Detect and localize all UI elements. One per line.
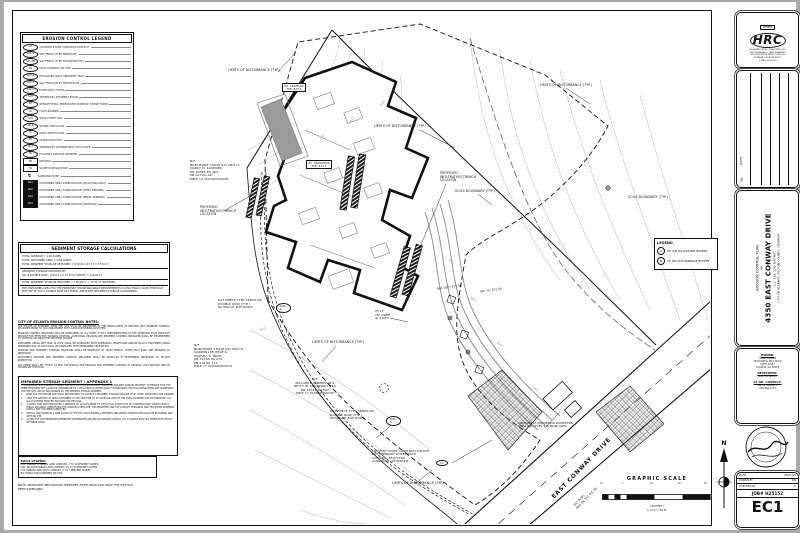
legend-leader-line xyxy=(85,61,131,62)
developer-lines: SAME AS ABOVE xyxy=(737,375,798,378)
item-text: ALONG THE SITE PERIMETER WHEREVER STORMW… xyxy=(27,419,176,424)
job-row-label: DRAWN BY xyxy=(739,479,753,482)
scale-tick: 90 xyxy=(704,482,707,485)
legend-label: CURB INLET FILTER xyxy=(40,89,64,92)
note-paragraph: DISTURBED AREAS LEFT IDLE 14 DAYS SHALL … xyxy=(18,343,170,348)
legend-row: Dv DIVERSION DITCH xyxy=(21,137,133,144)
legend-label: FLOW BARRIER xyxy=(40,110,59,113)
legend-symbol: Sd4 xyxy=(23,115,38,122)
job-rows: DATE 08/11/25 DRAWN BY KW CHECKED BY JT xyxy=(737,473,798,490)
legend-row: Ds3 DISTURBED AREA STABILIZATION (PERM. … xyxy=(21,194,133,201)
legend-row: Ch-T TEMPORARY CHANNELIZED STRUCTURE xyxy=(21,144,133,151)
north-letter: N xyxy=(721,440,726,447)
legend-symbol: Ds1 xyxy=(23,180,38,187)
legend-leader-line xyxy=(72,68,131,69)
legend-row: ↯ SAMPLING POINT xyxy=(21,173,133,180)
construction-exit-area xyxy=(468,370,664,452)
legend-label: DUST CONTROL ON SITE xyxy=(40,67,71,70)
jurisdiction-line: CITY OF ATLANTA, FULTON COUNTY, GEORGIA xyxy=(776,193,780,343)
legend-row: Sd2-C CURB INLET FILTER xyxy=(21,87,133,94)
soils-line: NO HYDRIC SOILS PRESENT ON SITE xyxy=(21,472,155,475)
owner-lines: AVERY DESIGN320 HOWELL MILL ROADSUITE D-… xyxy=(737,357,798,369)
legend-symbol: Sd1-NS xyxy=(23,58,38,65)
general-note: NOTE: PROPOSED INFILTRATION TRENCHES TO … xyxy=(18,484,138,491)
sediment-storage-calculations: SEDIMENT STORAGE CALCULATIONS TOTAL ACRE… xyxy=(18,242,170,296)
legend-label: INLET PROTECTION xyxy=(40,132,65,135)
legend-symbol: Co xyxy=(23,44,38,51)
legend-label: SILT FENCE INLET PROTECTION xyxy=(40,82,80,85)
scale-tick: 0 xyxy=(622,482,623,485)
legend-symbol: Sd1-S xyxy=(23,51,38,58)
legend-row: Ip INLET PROTECTION xyxy=(21,130,133,137)
sediment-calcs-lines: TOTAL ACREAGE = 1.06 ACRES TOTAL DISTURB… xyxy=(20,254,168,294)
legend-leader-line xyxy=(108,183,131,184)
of-line: OF xyxy=(759,193,763,343)
firm-info-lines: HIGHLAND RIDGE CONSULTING, INC.CIVIL ENG… xyxy=(737,49,798,62)
firm-logo: HRC xyxy=(750,33,786,48)
legend-symbol: Ch-T xyxy=(23,144,38,151)
legend-symbol: Ds3 xyxy=(23,194,38,201)
legend-label: SILT FENCE (TYPE NON-SENSITIVE) xyxy=(40,60,84,63)
legend-symbol: Sk xyxy=(23,151,38,158)
legend-leader-line xyxy=(65,90,131,91)
legend-row: Sk FLOATING SURFACE SKIMMER xyxy=(21,151,133,158)
legend-label: DISTURBED AREA STABILIZATION (MULCHING O… xyxy=(40,182,107,185)
notes-title: CITY OF ATLANTA EROSION CONTROL NOTES: xyxy=(18,320,170,324)
legend-row: Ch-S STONE CHECK DAM xyxy=(21,123,133,130)
legend-label: TEMPORARY SEDIMENT BASIN xyxy=(40,96,78,99)
sediment-calc-line: THE DISTURBED AREA FOR THE PROPOSED STOR… xyxy=(20,285,168,294)
buffer-legend-title: LEGEND xyxy=(657,241,715,245)
legend-label: SAMPLING POINT xyxy=(38,175,60,178)
sediment-calc-line: TOTAL SEDIMENT STORAGE PROVIDED = 116.09… xyxy=(20,279,168,285)
legend-leader-line xyxy=(64,140,131,141)
legend-symbol: Sd2-F xyxy=(23,80,38,87)
legend-label: EXCAVATED INLET SEDIMENT TRAP xyxy=(40,75,84,78)
buffer-legend-row: A 25' S/B NO DISTURB BUFFER xyxy=(657,247,715,255)
legend-label: STONE CHECK DAM xyxy=(40,125,65,128)
revision-grid-line xyxy=(761,73,762,185)
erosion-legend-list: Co CRUSHED STONE CONSTRUCTION EXIT Sd1-S… xyxy=(21,44,133,208)
scale-tick: 60 xyxy=(678,482,681,485)
legend-symbol: Sd2-C xyxy=(23,87,38,94)
district-line: L.L. 138, 17th DISTRICT xyxy=(772,193,776,343)
legend-label: ROCK FILTER DAM xyxy=(40,117,63,120)
project-title-block: EROSION CONTROL PLAN OF 4350 EAST CONWAY… xyxy=(736,190,799,346)
legend-row: Sd2-P EXCAVATED INLET SEDIMENT TRAP xyxy=(21,73,133,80)
legend-label: SLOPE STABILIZATION xyxy=(40,167,68,170)
notes-paragraphs: THE ESCAPE OF SEDIMENT FROM THE SITE SHA… xyxy=(18,326,170,371)
legend-symbol: ↯ xyxy=(23,174,36,179)
note-paragraph: EROSION AND SEDIMENT CONTROL MEASURES SH… xyxy=(18,350,170,355)
note-paragraph: ADDITIONAL EROSION AND SEDIMENT CONTROL … xyxy=(18,357,170,362)
legend-leader-line xyxy=(106,190,131,191)
impaired-items: 1. BMPs FOR THE ENTIRE SITE SHALL BE DES… xyxy=(21,394,175,424)
revision-header-column xyxy=(739,73,751,185)
item-text: A LARGE SIGN MUST BE POSTED A MINIMUM OF… xyxy=(27,404,176,412)
legend-symbol: Ip xyxy=(23,130,38,137)
owner-line: ATLANTA, GA 30318 xyxy=(737,366,798,369)
legend-symbol: Fb xyxy=(23,108,38,115)
sediment-calc-line: TOTAL SEDIMENT STORAGE REQUIRED = 0.56 A… xyxy=(20,263,168,267)
legend-leader-line xyxy=(109,104,131,105)
item-number: 3. xyxy=(21,404,25,412)
north-arrow: N xyxy=(712,436,738,518)
erosion-control-legend: EROSION CONTROL LEGEND Co CRUSHED STONE … xyxy=(20,32,134,221)
soils-lines: GuC: GWINNETT-URBAN LAND COMPLEX, 2 TO 1… xyxy=(21,463,155,475)
legend-label: DISTURBED AREA STABILIZATION (PERM. SEED… xyxy=(40,196,106,199)
legend-symbol: Ds2 xyxy=(23,187,38,194)
job-block: DATE 08/11/25 DRAWN BY KW CHECKED BY JT … xyxy=(736,472,799,528)
legend-row: Tb SLOPE STABILIZATION xyxy=(21,165,133,172)
contact-lines: WILLIE FARVER, II678-296-1179 xyxy=(737,384,798,390)
drawing-sheet: { "erosion_legend": { "title": "EROSION … xyxy=(0,0,800,533)
scale-tick: 30 xyxy=(600,482,603,485)
legend-leader-line xyxy=(92,147,131,148)
impaired-stream-box: IMPAIRED STREAM SEGMENT / APPENDIX 1 THE… xyxy=(18,376,178,456)
legend-row: Sd1-S SILT FENCE (TYPE SENSITIVE) xyxy=(21,51,133,58)
atlanta-erosion-notes: CITY OF ATLANTA EROSION CONTROL NOTES: T… xyxy=(18,320,170,372)
legend-row: Ds2 DISTURBED AREA STABILIZATION (TEMP. … xyxy=(21,187,133,194)
item-number: 5. xyxy=(21,419,25,424)
legend-symbol: Mt xyxy=(23,158,38,165)
scale-bar xyxy=(602,494,712,500)
legend-row: Ds4 DISTURBED AREA STABILIZATION (SODDIN… xyxy=(21,201,133,208)
legend-label: SILT FENCE (TYPE SENSITIVE) xyxy=(40,53,78,56)
legend-symbol: Sd3 xyxy=(23,94,38,101)
buffer-legend-row: B 75' NO DISTURBANCE BUFFER xyxy=(657,257,715,265)
revision-grid-line xyxy=(788,73,789,185)
legend-label: DIVERSION DITCH xyxy=(40,139,63,142)
legend-row: Sd1-NS SILT FENCE (TYPE NON-SENSITIVE) xyxy=(21,58,133,65)
soils-boundary-line xyxy=(470,38,655,350)
dumpster-area xyxy=(543,381,582,417)
bmp-callout-oval: Sd1-S xyxy=(386,416,401,426)
job-row-label: CHECKED BY xyxy=(739,485,756,488)
firm-info-line: T: (404) 355-1000 xyxy=(737,60,798,63)
erosion-legend-title: EROSION CONTROL LEGEND xyxy=(22,34,132,43)
project-address: 4350 EAST CONWAY DRIVE xyxy=(763,193,772,343)
revision-grid-line xyxy=(779,73,780,185)
legend-label: TEMPORARY CHANNELIZED STRUCTURE xyxy=(40,146,91,149)
soils-title: SOILS LEGEND: xyxy=(21,459,155,463)
buffer-legend: LEGEND A 25' S/B NO DISTURB BUFFER B 75'… xyxy=(654,238,718,270)
buffer-label: 75' NO DISTURBANCE BUFFER xyxy=(667,259,709,263)
owner-block: OWNER: AVERY DESIGN320 HOWELL MILL ROADS… xyxy=(736,348,799,424)
note-paragraph: SILT FENCE SHALL BE 'TYPE-S' AS PER THE … xyxy=(18,365,170,370)
legend-label: MATTING xyxy=(40,160,51,163)
note-paragraph: THE ESCAPE OF SEDIMENT FROM THE SITE SHA… xyxy=(18,326,170,331)
revision-block: REVISION DATE No. xyxy=(736,70,799,188)
legend-leader-line xyxy=(66,133,131,134)
legend-row: Ds1 DISTURBED AREA STABILIZATION (MULCHI… xyxy=(21,180,133,187)
contact-line: 678-296-1179 xyxy=(737,387,798,390)
legend-leader-line xyxy=(60,111,131,112)
scale-ticks: 300306090 xyxy=(600,482,714,485)
legend-leader-line xyxy=(79,97,131,98)
revision-col-label: REVISION xyxy=(736,116,738,130)
note-paragraph: EROSION CONTROL MEASURES WILL BE MAINTAI… xyxy=(18,333,170,341)
legend-leader-line xyxy=(81,83,131,84)
legend-row: Du DUST CONTROL ON SITE xyxy=(21,65,133,72)
job-row-label: DATE xyxy=(739,474,746,477)
legend-leader-line xyxy=(107,197,131,198)
legend-symbol: Sd2-P xyxy=(23,73,38,80)
sheet-number: EC1 xyxy=(737,498,798,516)
legend-row: Sd2-F SILT FENCE INLET PROTECTION xyxy=(21,80,133,87)
job-row-value: KW xyxy=(792,479,796,482)
legend-label: DISTURBED AREA STABILIZATION (TEMP. SEED… xyxy=(40,189,105,192)
legend-symbol: Du xyxy=(23,65,38,72)
legend-row: Sd4 ROCK FILTER DAM xyxy=(21,115,133,122)
impaired-item: 3. A LARGE SIGN MUST BE POSTED A MINIMUM… xyxy=(21,404,175,412)
job-row-value: JT xyxy=(794,485,796,488)
firm-logo-block: MEMBER HRC HIGHLAND RIDGE CONSULTING, IN… xyxy=(736,12,799,68)
pe-seal xyxy=(736,424,797,470)
legend-leader-line xyxy=(64,118,131,119)
legend-leader-line xyxy=(66,126,131,127)
buffer-symbol: A xyxy=(657,247,665,255)
legend-leader-line xyxy=(79,154,131,155)
legend-label: CRUSHED STONE CONSTRUCTION EXIT xyxy=(40,46,90,49)
legend-row: Sd3 TEMPORARY SEDIMENT BASIN xyxy=(21,94,133,101)
number-col-label: No. xyxy=(739,177,743,182)
legend-leader-line xyxy=(91,47,131,48)
sediment-calc-line: Sd1-S DOUBLE ROW - (533 LF x 0.37 CY/LF … xyxy=(20,273,168,277)
revision-grid-line xyxy=(770,73,771,185)
legend-symbol: Rt xyxy=(23,101,38,108)
member-banner: MEMBER xyxy=(760,25,776,30)
job-row-value: 08/11/25 xyxy=(784,474,796,477)
sediment-calcs-title: SEDIMENT STORAGE CALCULATIONS xyxy=(20,244,168,253)
buffer-symbol: B xyxy=(657,257,665,265)
legend-label: FLOATING SURFACE SKIMMER xyxy=(40,153,78,156)
legend-leader-line xyxy=(69,168,131,169)
legend-leader-line xyxy=(85,76,131,77)
legend-leader-line xyxy=(61,176,131,177)
legend-symbol: Dv xyxy=(23,137,38,144)
graphic-scale: GRAPHIC SCALE 300306090 ( IN FEET ) 1 in… xyxy=(600,476,714,512)
developer-line: SAME AS ABOVE xyxy=(737,375,798,378)
legend-row: Mt MATTING xyxy=(21,158,133,165)
legend-leader-line xyxy=(52,161,131,162)
scale-tick: 30 xyxy=(650,482,653,485)
legend-leader-line xyxy=(79,54,131,55)
scale-caption-inch: 1 inch = 30 ft. xyxy=(600,509,714,513)
job-number: JOB# H25152 xyxy=(737,490,798,498)
legend-symbol: Ch-S xyxy=(23,123,38,130)
soils-legend: SOILS LEGEND: GuC: GWINNETT-URBAN LAND C… xyxy=(18,456,157,478)
impaired-item: 5. ALONG THE SITE PERIMETER WHEREVER STO… xyxy=(21,419,175,424)
legend-symbol: Ds4 xyxy=(23,201,38,208)
legend-leader-line xyxy=(98,204,131,205)
legend-row: Fb FLOW BARRIER xyxy=(21,108,133,115)
legend-label: DISTURBED AREA STABILIZATION (SODDING) xyxy=(40,203,97,206)
project-title-rotated: EROSION CONTROL PLAN OF 4350 EAST CONWAY… xyxy=(755,193,780,343)
date-col-label: DATE xyxy=(739,157,743,165)
legend-symbol: Tb xyxy=(23,165,38,172)
buffer-legend-items: A 25' S/B NO DISTURB BUFFER B 75' NO DIS… xyxy=(657,247,715,265)
impaired-intro: THE PROPOSED SITE DRAINS TO NANCY CREEK … xyxy=(21,385,175,393)
buffer-label: 25' S/B NO DISTURB BUFFER xyxy=(667,249,707,253)
bmp-callout-oval: Sd1-S xyxy=(276,303,291,313)
legend-label: RETROFITTING, PERFORATED RISER W/ STONE … xyxy=(40,103,108,106)
legend-row: Rt RETROFITTING, PERFORATED RISER W/ STO… xyxy=(21,101,133,108)
legend-row: Co CRUSHED STONE CONSTRUCTION EXIT xyxy=(21,44,133,51)
